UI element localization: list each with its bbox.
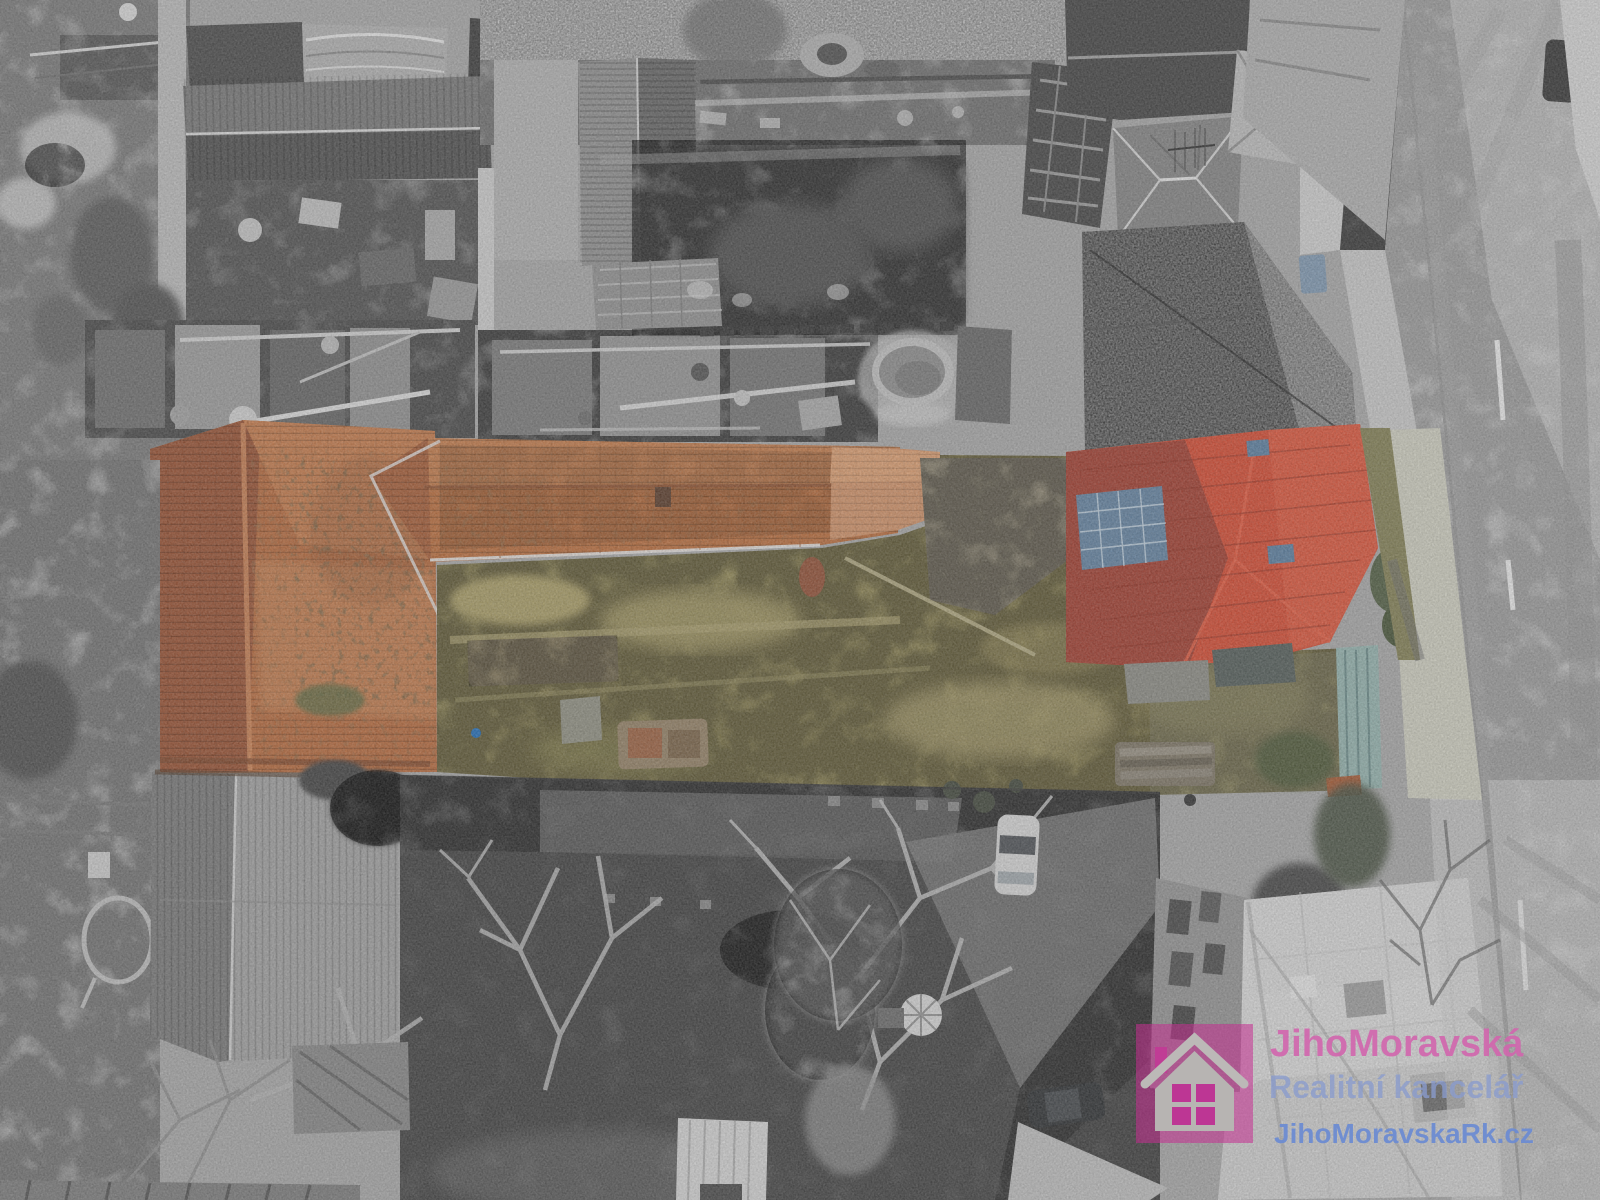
svg-text:Realitní kancelář: Realitní kancelář [1269,1069,1524,1105]
svg-text:JihoMoravskaRk.cz: JihoMoravskaRk.cz [1274,1118,1534,1149]
svg-text:JihoMoravská: JihoMoravská [1270,1023,1524,1065]
